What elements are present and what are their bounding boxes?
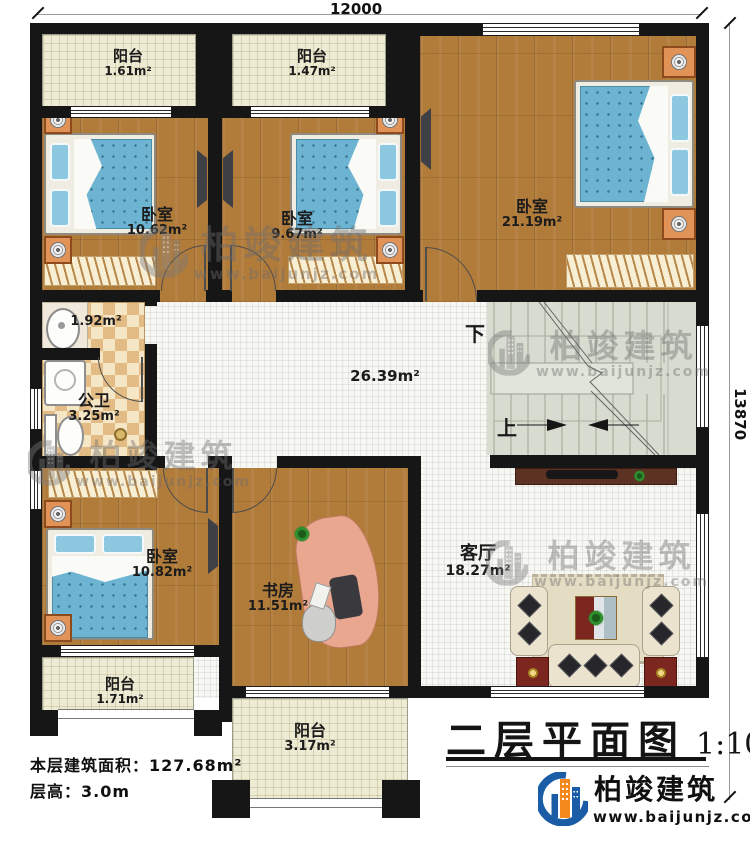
room-area: 18.27m²	[445, 564, 510, 579]
room-name: 阳台	[288, 48, 335, 65]
window	[250, 106, 370, 118]
window	[60, 645, 195, 657]
wall	[645, 686, 709, 698]
dimension-tick	[696, 7, 709, 20]
nightstand	[44, 614, 72, 642]
wall	[30, 290, 160, 302]
wall	[208, 106, 222, 302]
wall	[405, 23, 420, 302]
wall	[30, 456, 165, 468]
sofa-single	[510, 586, 548, 656]
title-underline-thin	[446, 766, 709, 767]
room-area: 3.25m²	[68, 410, 119, 424]
pillow	[378, 189, 398, 227]
window	[245, 686, 390, 698]
room-label-hall: 26.39m²	[350, 368, 420, 385]
plant-icon	[294, 526, 310, 542]
pillow	[670, 148, 690, 196]
wall	[42, 348, 100, 360]
wall	[219, 456, 232, 722]
dimension-right-value: 13870	[731, 388, 749, 440]
title-underline	[446, 757, 706, 761]
plant-icon	[634, 470, 645, 482]
company-name: 柏竣建筑	[594, 776, 718, 804]
room-area: 1.71m²	[96, 693, 143, 706]
room-label-balcony-tl: 阳台 1.61m²	[104, 48, 151, 78]
room-area: 1.92m²	[70, 315, 121, 329]
wall	[276, 290, 423, 302]
wall	[196, 23, 232, 118]
washer-drum	[54, 369, 76, 391]
nightstand	[376, 236, 404, 264]
room-area: 1.61m²	[104, 65, 151, 78]
side-table	[644, 657, 677, 689]
cushion	[517, 593, 541, 617]
wardrobe	[48, 470, 158, 498]
room-name: 书房	[248, 582, 308, 600]
wall	[696, 428, 709, 513]
room-label-bedroom-tr: 卧室 21.19m²	[502, 198, 562, 230]
nightstand	[662, 46, 696, 78]
pillow	[50, 189, 70, 227]
toilet-tank	[44, 414, 57, 456]
stairs-down-label: 下	[465, 318, 485, 347]
room-name: 卧室	[132, 548, 192, 566]
wall	[145, 290, 157, 306]
pillar	[382, 780, 420, 818]
wall	[30, 645, 60, 657]
wall	[408, 456, 421, 698]
side-table	[516, 657, 549, 689]
room-label-bedroom-bl: 卧室 10.82m²	[132, 548, 192, 580]
dimension-tick	[724, 17, 737, 30]
pillow	[378, 143, 398, 181]
wall	[232, 23, 390, 34]
window	[70, 106, 172, 118]
pillow	[50, 143, 70, 181]
dimension-top-value: 12000	[330, 0, 382, 18]
window	[696, 325, 709, 428]
wall	[42, 106, 70, 118]
bed	[574, 80, 694, 208]
floor-drain-icon	[114, 428, 127, 441]
tv-icon	[197, 150, 207, 208]
floor-height-text: 层高：3.0m	[30, 778, 130, 802]
wall	[206, 290, 232, 302]
wall	[477, 290, 709, 302]
room-name: 客厅	[445, 544, 510, 564]
room-area: 10.82m²	[132, 566, 192, 580]
wall	[390, 686, 490, 698]
wall	[30, 23, 196, 34]
room-name: 卧室	[271, 210, 322, 228]
room-label-bedroom-tm: 卧室 9.67m²	[271, 210, 322, 242]
cushion	[557, 653, 581, 677]
wall	[696, 23, 709, 325]
room-label-balcony-tm: 阳台 1.47m²	[288, 48, 335, 78]
cushion	[583, 653, 607, 677]
pillar	[194, 710, 222, 736]
room-area: 3.17m²	[284, 740, 335, 754]
nightstand	[44, 500, 72, 528]
room-label-study: 书房 11.51m²	[248, 582, 308, 614]
wardrobe	[566, 254, 694, 288]
window	[696, 513, 709, 658]
tv-icon	[421, 108, 431, 170]
window	[30, 470, 42, 510]
room-name: 卧室	[502, 198, 562, 216]
tv-icon	[223, 150, 233, 208]
room-label-balcony-bl: 阳台 1.71m²	[96, 676, 143, 706]
room-label-balcony-bm: 阳台 3.17m²	[284, 722, 335, 754]
room-name: 公卫	[68, 392, 119, 410]
cushion	[649, 621, 673, 645]
faucet-icon	[58, 322, 65, 329]
cushion	[649, 593, 673, 617]
stairs-up-label: 上	[497, 412, 517, 441]
room-area: 11.51m²	[248, 600, 308, 614]
room-name: 阳台	[104, 48, 151, 65]
window	[30, 388, 42, 430]
tv-flat	[546, 470, 618, 479]
pillow	[54, 534, 96, 554]
room-name: 阳台	[96, 676, 143, 693]
floor-plan-page: 阳台 1.61m² 阳台 1.47m² 卧室 10.62m² 卧室 9.67m²…	[0, 0, 750, 841]
company-url: www.baijunjz.com	[593, 810, 750, 825]
room-label-vanity: 1.92m²	[70, 315, 121, 329]
room-label-bedroom-tl: 卧室 10.62m²	[127, 206, 187, 238]
wall	[30, 23, 42, 736]
window	[490, 686, 645, 698]
room-area: 1.47m²	[288, 65, 335, 78]
wall	[145, 344, 157, 470]
wall	[195, 645, 232, 657]
room-name: 阳台	[284, 722, 335, 740]
railing	[58, 709, 194, 719]
pillar	[212, 780, 250, 818]
window	[482, 23, 640, 36]
plant-icon	[588, 610, 604, 626]
dimension-line-right	[729, 24, 730, 800]
room-area: 10.62m²	[127, 224, 187, 238]
dimension-tick	[32, 7, 45, 20]
room-area: 21.19m²	[502, 216, 562, 230]
nightstand	[44, 236, 72, 264]
nightstand	[662, 208, 696, 240]
pillar	[30, 710, 58, 736]
wall	[219, 686, 245, 698]
company-logo-icon	[538, 772, 588, 826]
wall	[277, 456, 417, 468]
railing	[250, 798, 382, 808]
floor-area-text: 本层建筑面积：127.68m²	[30, 752, 242, 776]
room-name: 卧室	[127, 206, 187, 224]
sofa-three-seat	[548, 644, 640, 688]
cushion	[609, 653, 633, 677]
sofa-single	[642, 586, 680, 656]
wall	[490, 455, 709, 468]
cushion	[517, 621, 541, 645]
staircase	[487, 302, 696, 455]
room-area: 9.67m²	[271, 228, 322, 242]
pillow	[670, 94, 690, 142]
dimension-tick	[724, 791, 737, 804]
tv-icon	[208, 518, 218, 574]
room-area: 26.39m²	[350, 368, 420, 385]
room-label-bath: 公卫 3.25m²	[68, 392, 119, 424]
room-label-living: 客厅 18.27m²	[445, 544, 510, 579]
